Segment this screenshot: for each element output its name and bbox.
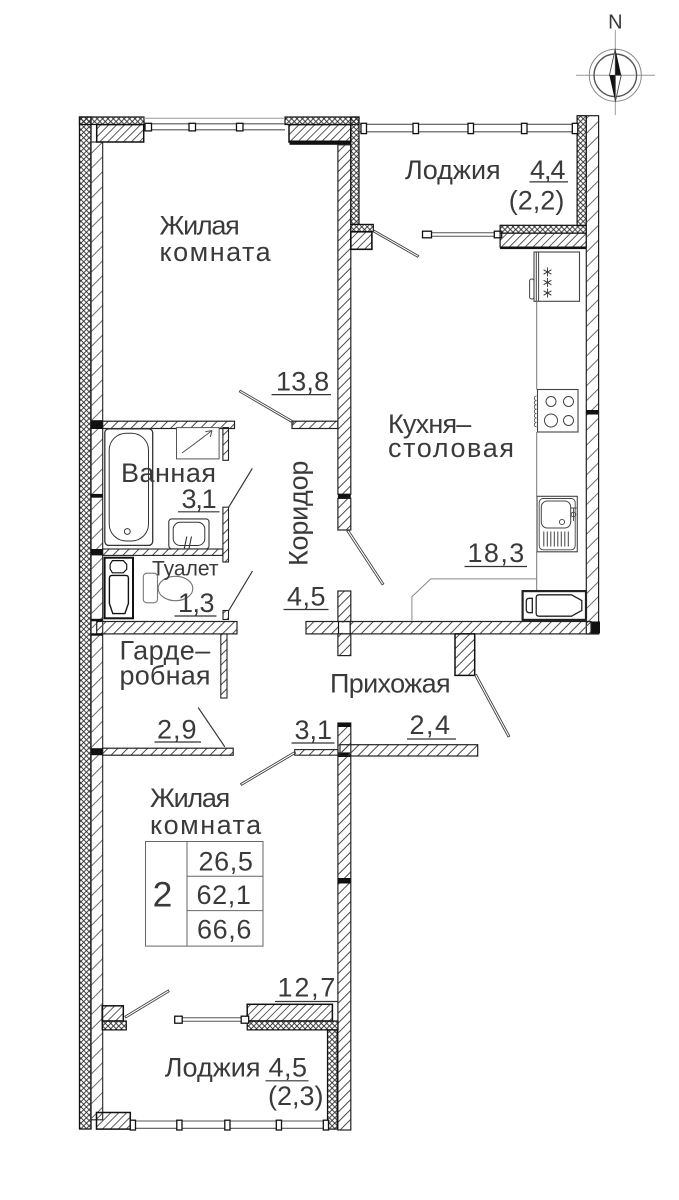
svg-text:12,7: 12,7 — [278, 973, 338, 1003]
svg-text:1,3: 1,3 — [178, 588, 214, 618]
svg-text:66,6: 66,6 — [197, 914, 252, 944]
svg-text:Лоджия: Лоджия — [165, 1053, 261, 1083]
svg-text:столовая: столовая — [388, 433, 516, 463]
svg-text:Лоджия: Лоджия — [405, 155, 501, 185]
svg-text:робная: робная — [120, 661, 211, 691]
svg-text:26,5: 26,5 — [199, 846, 254, 876]
svg-text:18,3: 18,3 — [468, 538, 526, 568]
svg-text:N: N — [608, 12, 622, 34]
svg-text:4,4: 4,4 — [530, 155, 566, 185]
svg-text:комната: комната — [160, 237, 273, 267]
svg-text:62,1: 62,1 — [197, 880, 252, 910]
svg-text:2,9: 2,9 — [157, 714, 198, 744]
svg-text:комната: комната — [150, 810, 263, 840]
svg-text:4,5: 4,5 — [269, 1053, 308, 1083]
svg-text:13,8: 13,8 — [276, 367, 329, 397]
svg-text:Жилая: Жилая — [150, 783, 229, 813]
svg-text:2,4: 2,4 — [410, 710, 452, 740]
svg-text:3,1: 3,1 — [182, 484, 216, 514]
svg-text:Коридор: Коридор — [284, 461, 314, 566]
svg-text:4,5: 4,5 — [287, 582, 326, 612]
svg-text:Туалет: Туалет — [152, 558, 219, 581]
svg-text:(2,2): (2,2) — [509, 186, 565, 216]
svg-text:Прихожая: Прихожая — [330, 669, 450, 699]
svg-text:(2,3): (2,3) — [268, 1081, 324, 1111]
svg-text:3,1: 3,1 — [295, 715, 333, 745]
svg-text:2: 2 — [153, 875, 173, 915]
